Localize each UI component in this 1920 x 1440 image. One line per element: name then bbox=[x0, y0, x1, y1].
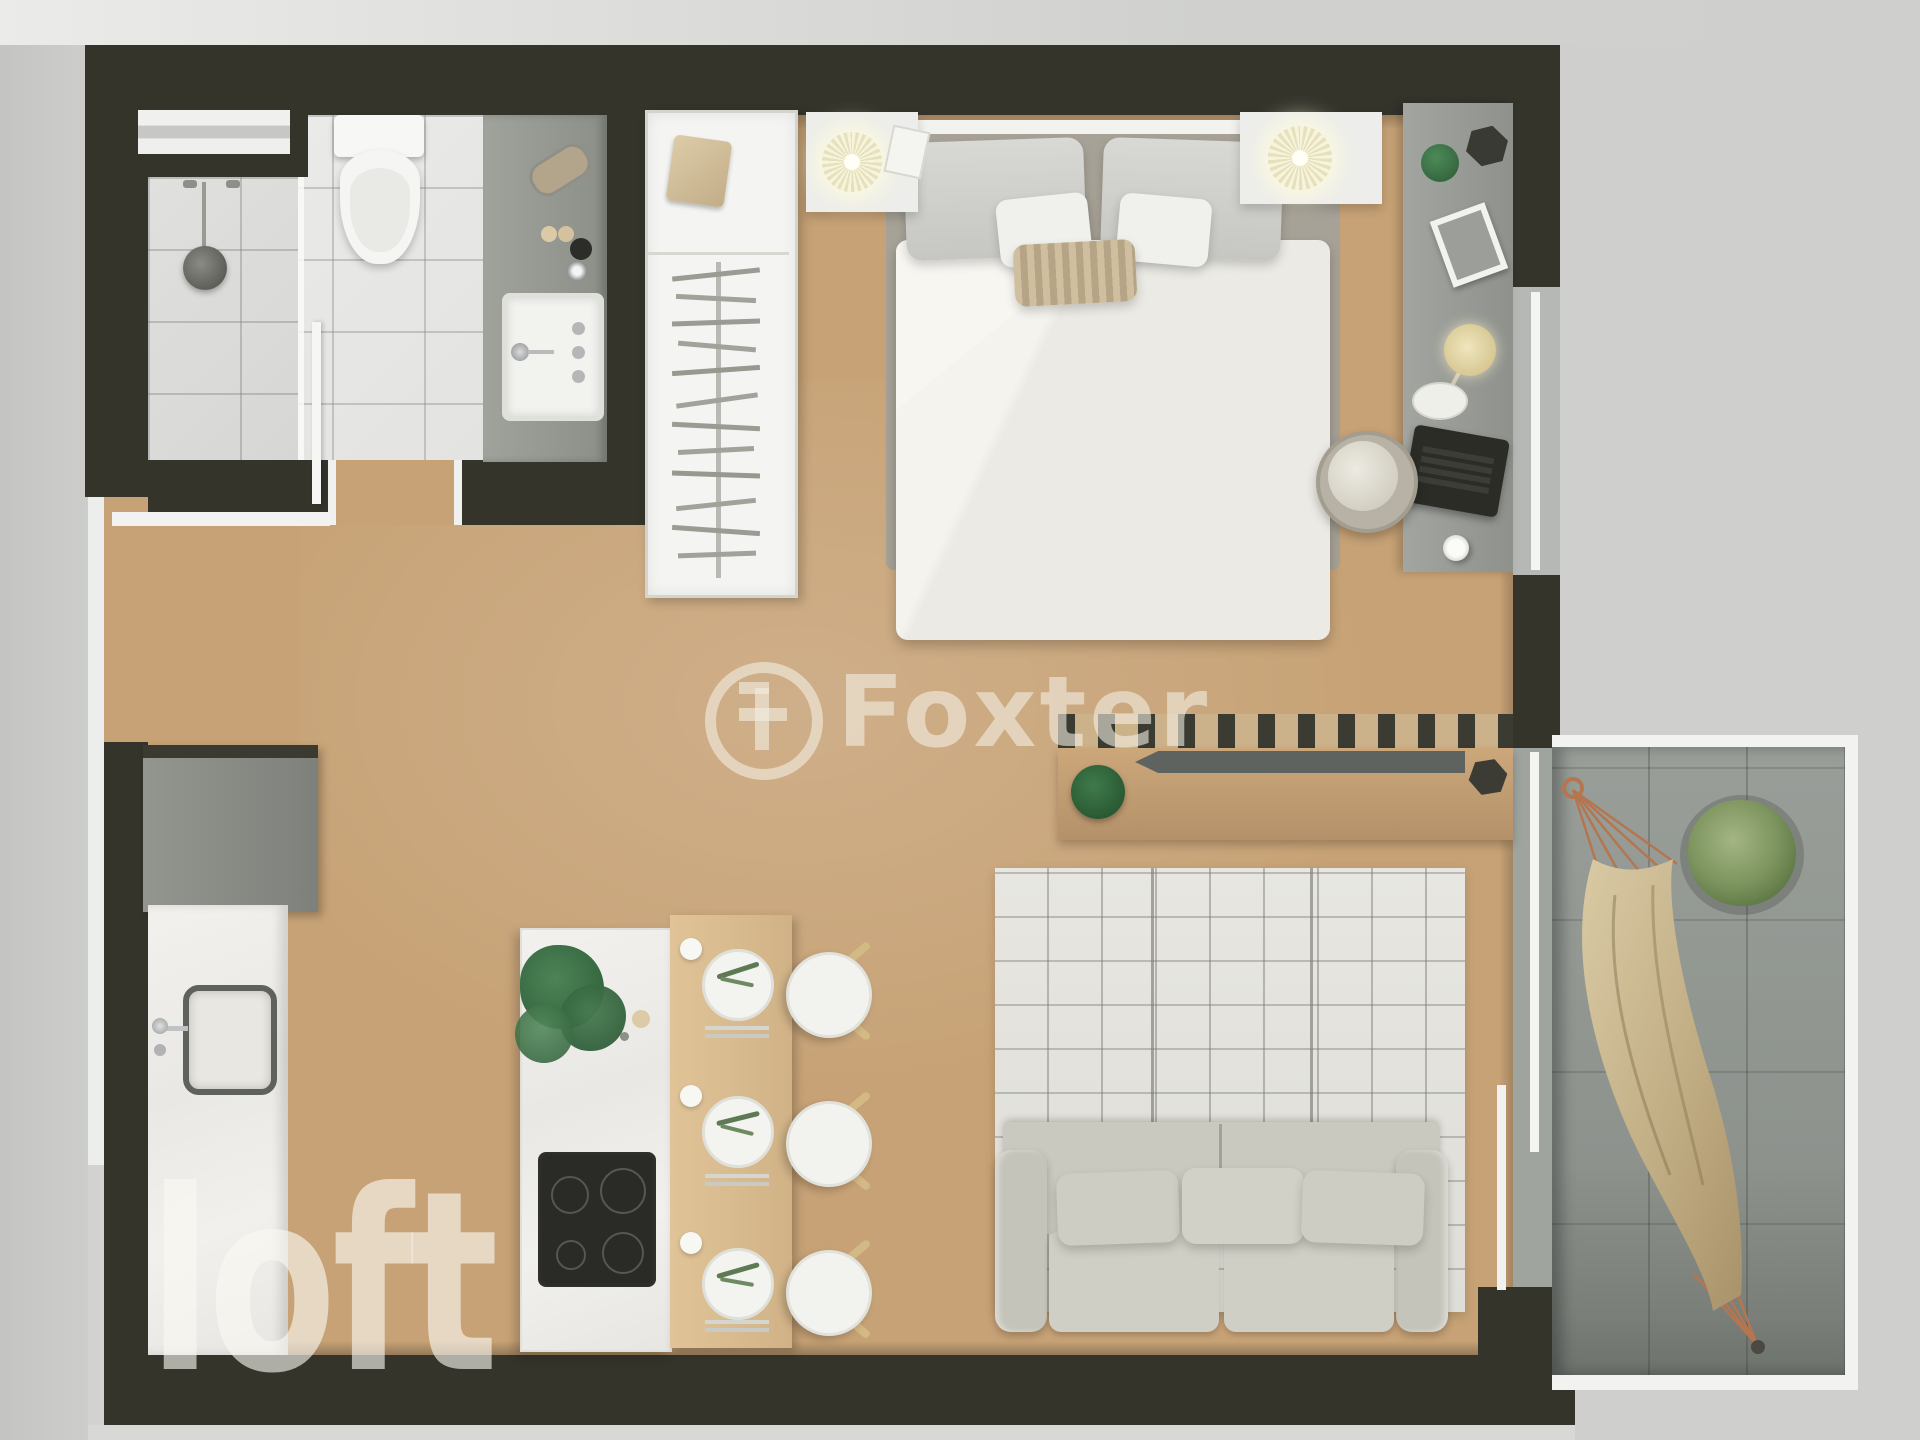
cutlery-2a bbox=[705, 1174, 769, 1178]
wardrobe-shelf-divider bbox=[648, 252, 789, 255]
door-jamb-right bbox=[454, 460, 462, 525]
wall-left-lower bbox=[104, 742, 148, 1425]
hammock bbox=[1545, 755, 1865, 1395]
wardrobe-storage-bag bbox=[666, 134, 733, 207]
toilet-seat bbox=[350, 168, 410, 252]
bowl-1 bbox=[680, 938, 702, 960]
sofa-cushion-1 bbox=[1056, 1170, 1180, 1246]
kitchen-counter bbox=[148, 905, 288, 1355]
cutlery-1b bbox=[705, 1034, 769, 1038]
entry-cabinet bbox=[143, 745, 318, 912]
sofa-cushion-2 bbox=[1182, 1168, 1304, 1244]
exterior-ledge bbox=[88, 490, 104, 1165]
exterior-bottom-strip bbox=[88, 1425, 1575, 1440]
exterior-left-column bbox=[0, 45, 88, 1440]
desk-lamp-base bbox=[1412, 382, 1468, 420]
entry-threshold bbox=[112, 512, 330, 526]
sink-fixture-dot-1 bbox=[572, 322, 585, 335]
island-plant-leaf-3 bbox=[515, 1005, 573, 1063]
shower-valve-left bbox=[183, 180, 197, 188]
entry-cabinet-edge bbox=[143, 745, 318, 758]
vanity-candle-2 bbox=[558, 226, 574, 242]
console-tray bbox=[1135, 751, 1465, 773]
dining-chair-3 bbox=[786, 1250, 872, 1336]
sofa-cushion-3 bbox=[1301, 1170, 1425, 1246]
console-slats bbox=[1058, 714, 1513, 748]
dining-chair-1 bbox=[786, 952, 872, 1038]
kitchen-sink bbox=[183, 985, 277, 1095]
sofa-arm-left bbox=[995, 1150, 1047, 1332]
hammock-ring-top bbox=[1564, 779, 1582, 797]
cutlery-3b bbox=[705, 1328, 769, 1332]
kitchen-faucet-knob bbox=[152, 1018, 168, 1034]
desk-lamp-shade bbox=[1444, 324, 1496, 376]
burner-4 bbox=[602, 1232, 644, 1274]
burner-2 bbox=[600, 1168, 646, 1214]
wall-right-upper bbox=[1513, 45, 1560, 287]
shower-head bbox=[183, 246, 227, 290]
wall-bottom bbox=[104, 1355, 1575, 1425]
island-jar bbox=[632, 1010, 650, 1028]
sink-faucet-spout bbox=[528, 350, 554, 354]
cutlery-2b bbox=[705, 1182, 769, 1186]
desk-moss-plant bbox=[1421, 144, 1459, 182]
shower-valve-right bbox=[226, 180, 240, 188]
kitchen-faucet-knob-2 bbox=[154, 1044, 166, 1056]
dining-chair-2 bbox=[786, 1101, 872, 1187]
balcony-sliding-door bbox=[1530, 752, 1539, 1152]
bathroom-window bbox=[138, 110, 290, 154]
shower-floor bbox=[148, 177, 298, 460]
hammock-ring-bottom bbox=[1751, 1340, 1765, 1354]
shower-glass-partition bbox=[298, 177, 304, 460]
sink-fixture-dot-3 bbox=[572, 370, 585, 383]
console-plant bbox=[1071, 765, 1125, 819]
exterior-top-strip bbox=[0, 0, 1920, 45]
office-chair-seat bbox=[1328, 441, 1398, 511]
sink-faucet-knob bbox=[511, 343, 529, 361]
floor-plan-canvas: Foxter loft bbox=[0, 0, 1920, 1440]
shower-hose bbox=[202, 182, 206, 254]
hammock-ropes-top bbox=[1573, 790, 1677, 872]
cutlery-1a bbox=[705, 1026, 769, 1030]
wall-right-mid bbox=[1513, 575, 1560, 660]
bowl-3 bbox=[680, 1232, 702, 1254]
bottom-wall-shadow bbox=[104, 1341, 1575, 1355]
hammock-canvas bbox=[1582, 859, 1742, 1311]
bathroom-door-opening bbox=[328, 460, 462, 525]
bed-throw-pillow bbox=[1012, 239, 1137, 307]
cutlery-3a bbox=[705, 1320, 769, 1324]
balcony-sliding-door-inner bbox=[1497, 1085, 1506, 1290]
sofa-seat-right bbox=[1224, 1230, 1394, 1332]
wall-bathroom-divider bbox=[607, 115, 648, 525]
island-speck bbox=[620, 1032, 629, 1041]
vanity-candle-1 bbox=[541, 226, 557, 242]
bowl-2 bbox=[680, 1085, 702, 1107]
table-lamp-right-center bbox=[1292, 150, 1308, 166]
vanity-chrome-jar bbox=[567, 261, 587, 281]
vanity-black-jar bbox=[570, 238, 592, 260]
coffee-cup bbox=[1443, 535, 1469, 561]
burner-3 bbox=[556, 1240, 586, 1270]
plate-1 bbox=[702, 949, 774, 1021]
burner-1 bbox=[551, 1176, 589, 1214]
right-window-frame bbox=[1531, 292, 1540, 570]
sink-fixture-dot-2 bbox=[572, 346, 585, 359]
shower-glass-door bbox=[312, 322, 321, 504]
table-lamp-left-center bbox=[844, 154, 860, 170]
wall-top bbox=[85, 45, 1560, 115]
